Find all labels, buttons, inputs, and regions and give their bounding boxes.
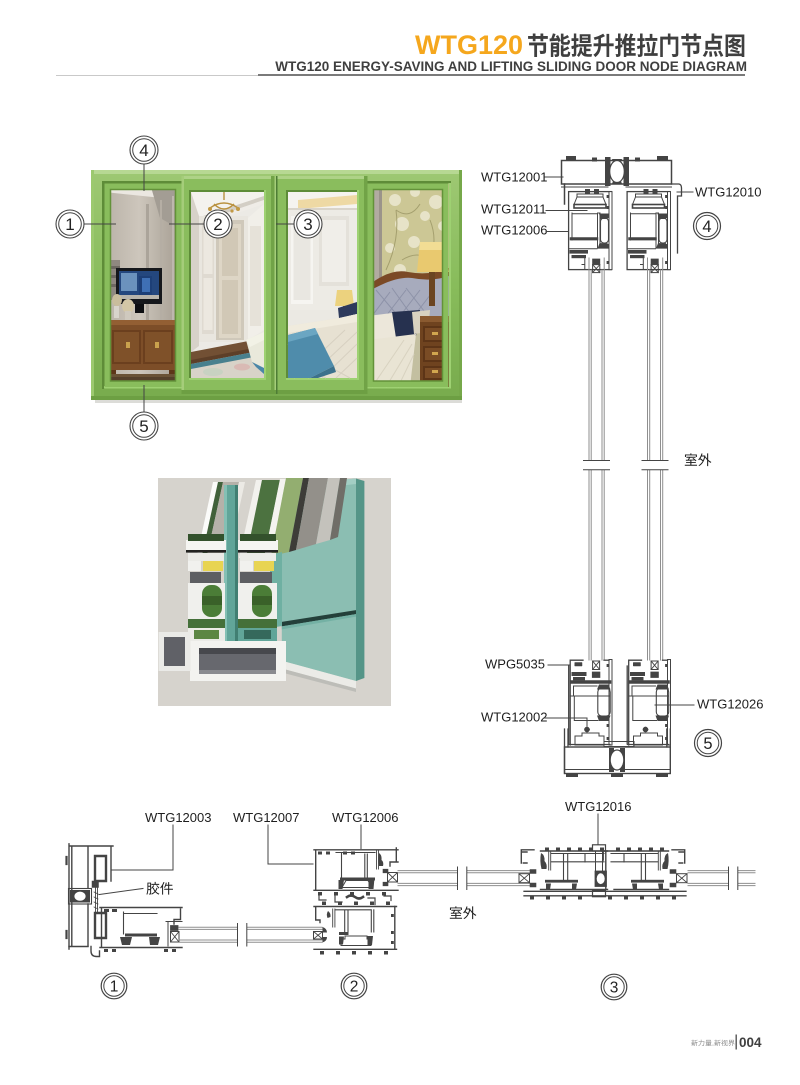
svg-text:4: 4 bbox=[702, 218, 711, 236]
svg-text:WPG5035: WPG5035 bbox=[485, 657, 545, 672]
svg-text:WTG12001: WTG12001 bbox=[481, 170, 547, 185]
svg-text:WTG12011: WTG12011 bbox=[481, 202, 547, 217]
svg-text:2: 2 bbox=[350, 979, 359, 996]
svg-text:5: 5 bbox=[703, 735, 712, 753]
svg-text:5: 5 bbox=[139, 417, 148, 436]
svg-text:WTG12026: WTG12026 bbox=[697, 697, 763, 712]
svg-text:WTG12006: WTG12006 bbox=[332, 810, 398, 825]
svg-text:1: 1 bbox=[65, 215, 74, 234]
svg-text:004: 004 bbox=[739, 1035, 762, 1050]
svg-text:WTG12016: WTG12016 bbox=[565, 799, 631, 814]
svg-text:WTG12002: WTG12002 bbox=[481, 710, 547, 725]
svg-text:WTG12010: WTG12010 bbox=[695, 185, 761, 200]
svg-text:WTG12006: WTG12006 bbox=[481, 223, 547, 238]
svg-text:WTG12003: WTG12003 bbox=[145, 810, 211, 825]
svg-text:1: 1 bbox=[110, 979, 119, 996]
svg-text:3: 3 bbox=[610, 980, 619, 997]
svg-text:2: 2 bbox=[213, 215, 222, 234]
svg-text:WTG12007: WTG12007 bbox=[233, 810, 299, 825]
svg-text:3: 3 bbox=[303, 215, 312, 234]
svg-text:4: 4 bbox=[139, 141, 148, 160]
